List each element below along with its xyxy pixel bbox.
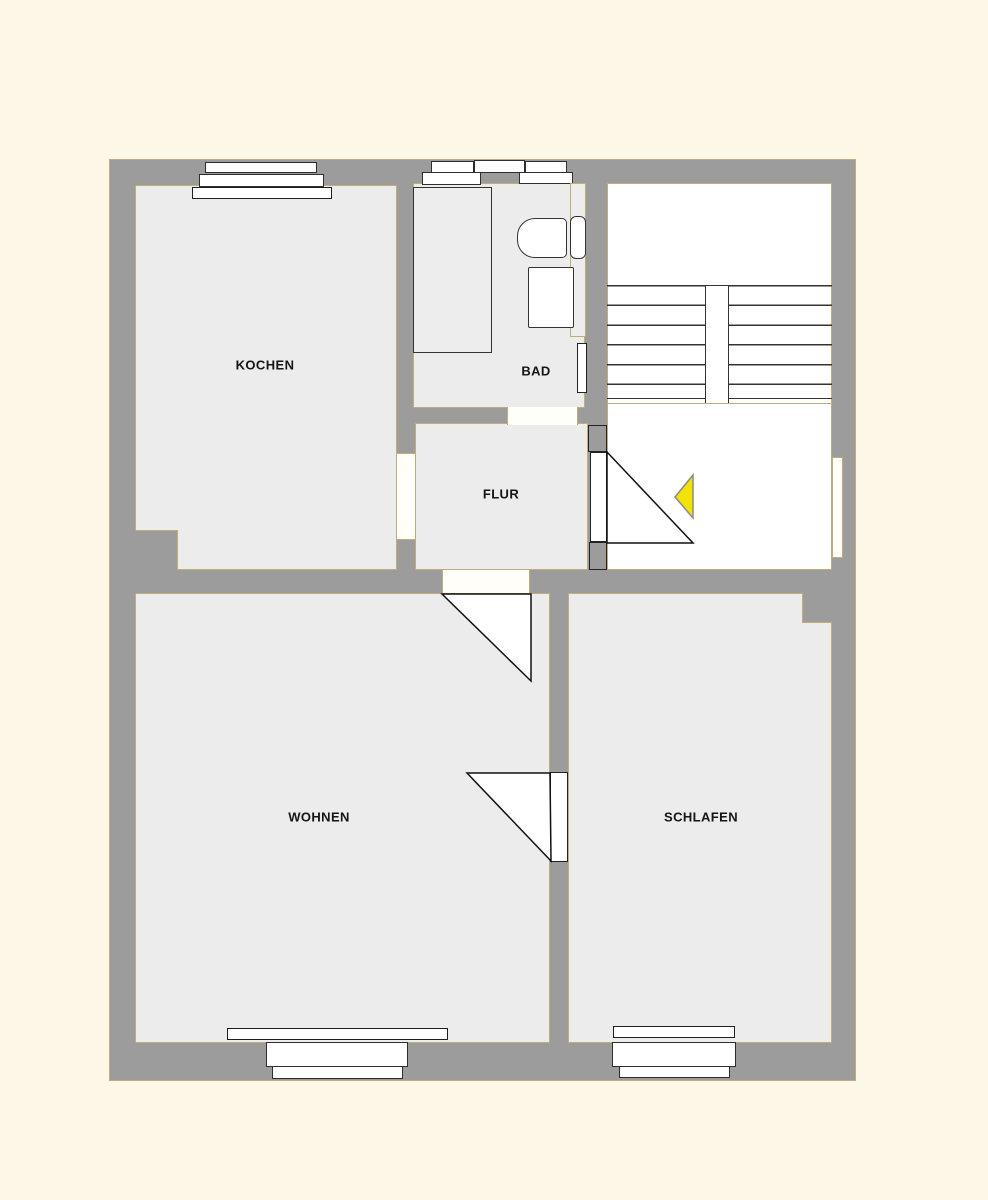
stairwell-wall-recess: [832, 457, 843, 558]
door-opening-bad-flur: [507, 407, 578, 425]
room-label-schlafen: SCHLAFEN: [664, 810, 738, 825]
door-opening-flur-wohnen: [442, 570, 530, 593]
entrance-door-jamb-bottom: [589, 542, 607, 570]
window-wohnen-step: [272, 1066, 403, 1079]
entrance-door-leaf: [590, 452, 607, 542]
window-bad-sill-left: [422, 172, 481, 185]
window-wohnen-open: [266, 1042, 408, 1067]
window-kochen-mid: [199, 174, 324, 187]
entrance-door-jamb-top: [588, 425, 607, 452]
room-label-wohnen: WOHNEN: [288, 810, 350, 825]
toilet-cistern: [570, 216, 586, 259]
room-label-flur: FLUR: [483, 487, 519, 502]
stair-landing-line: [607, 403, 832, 404]
window-kochen-outer: [205, 162, 317, 173]
window-schlafen-step: [619, 1066, 730, 1078]
radiator: [577, 343, 587, 393]
window-kochen-sill: [192, 187, 332, 199]
wall-notch-kochen: [135, 530, 178, 570]
window-schlafen-open: [612, 1042, 736, 1067]
window-schlafen-sill: [613, 1026, 735, 1038]
stair-flight-right: [729, 285, 832, 399]
wall-notch-schlafen: [802, 593, 832, 623]
door-opening-kochen-flur: [397, 453, 415, 540]
stair-divider: [705, 285, 729, 404]
floor-plan: KOCHEN BAD FLUR WOHNEN SCHLAFEN: [0, 0, 988, 1200]
sink: [528, 267, 574, 328]
stair-flight-left: [607, 285, 705, 399]
bathtub: [413, 187, 492, 353]
room-kochen: [135, 185, 397, 570]
window-wohnen-sill: [227, 1028, 448, 1040]
room-label-bad: BAD: [521, 364, 550, 379]
toilet-bowl: [517, 218, 567, 258]
door-opening-wohnen-schlafen: [550, 772, 568, 862]
window-bad-sill-right: [519, 172, 573, 184]
room-label-kochen: KOCHEN: [236, 358, 295, 373]
window-bad-outer-mid: [474, 160, 525, 173]
